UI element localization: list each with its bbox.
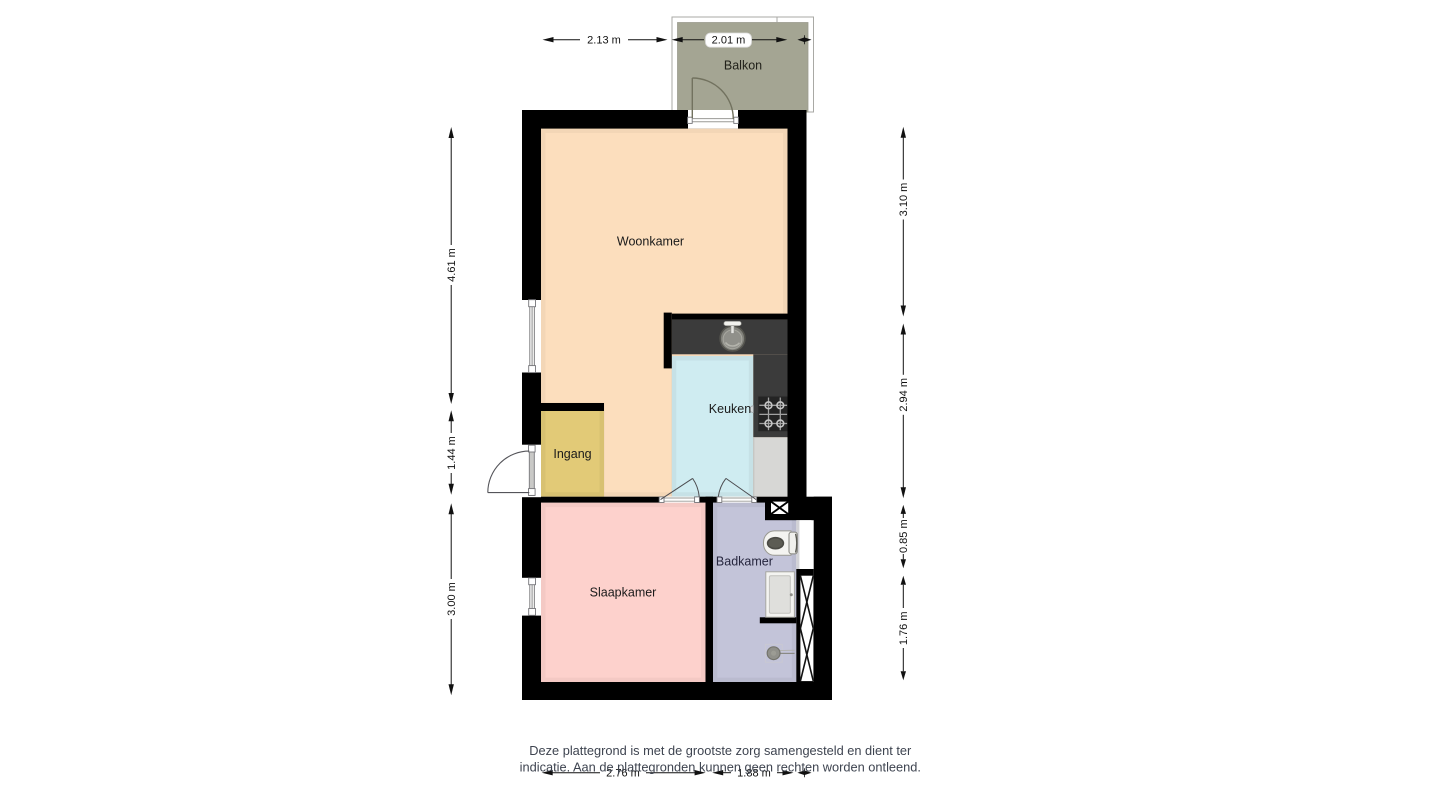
svg-text:3.10 m: 3.10 m: [898, 183, 910, 217]
svg-text:Woonkamer: Woonkamer: [617, 235, 684, 249]
svg-text:1.44 m: 1.44 m: [446, 436, 458, 470]
svg-text:Slaapkamer: Slaapkamer: [590, 586, 657, 600]
svg-text:3.00 m: 3.00 m: [446, 582, 458, 616]
svg-text:Badkamer: Badkamer: [716, 555, 773, 569]
svg-text:1.76 m: 1.76 m: [898, 611, 910, 645]
svg-text:Ingang: Ingang: [553, 447, 591, 461]
svg-text:Keuken: Keuken: [709, 402, 751, 416]
svg-text:2.13 m: 2.13 m: [587, 35, 621, 47]
svg-text:2.94 m: 2.94 m: [898, 378, 910, 412]
svg-text:Balkon: Balkon: [724, 59, 762, 73]
svg-text:4.61 m: 4.61 m: [446, 248, 458, 282]
svg-text:Deze plattegrond is met de gro: Deze plattegrond is met de grootste zorg…: [529, 743, 912, 758]
svg-text:2.01 m: 2.01 m: [712, 35, 746, 47]
svg-text:indicatie. Aan de plattegronde: indicatie. Aan de plattegronden kunnen g…: [520, 760, 921, 775]
svg-text:0.85 m: 0.85 m: [898, 519, 910, 553]
